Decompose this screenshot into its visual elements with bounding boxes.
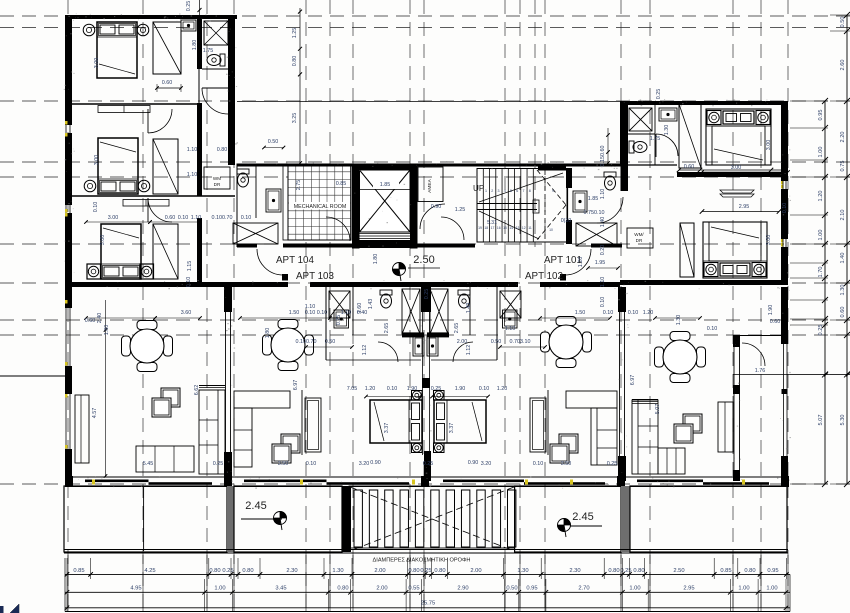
svg-text:2.00: 2.00 <box>470 568 481 574</box>
svg-text:1.43: 1.43 <box>368 299 374 310</box>
svg-text:5.07: 5.07 <box>655 404 661 415</box>
svg-text:0.703.10: 0.703.10 <box>510 339 531 345</box>
svg-text:3.00: 3.00 <box>731 165 742 171</box>
svg-text:0.25: 0.25 <box>656 89 662 100</box>
svg-text:0.10: 0.10 <box>600 297 606 308</box>
svg-text:1.10: 1.10 <box>600 277 606 288</box>
svg-text:10: 10 <box>549 228 553 232</box>
svg-text:WM/: WM/ <box>634 232 644 237</box>
svg-text:4.25: 4.25 <box>144 568 155 574</box>
svg-text:0.10: 0.10 <box>533 461 544 467</box>
svg-text:0.10: 0.10 <box>479 386 490 392</box>
svg-text:0.80: 0.80 <box>217 147 228 153</box>
svg-text:3.20: 3.20 <box>359 461 370 467</box>
svg-text:0.10: 0.10 <box>178 215 189 221</box>
svg-text:ΔΙΑΜΠΕΡΕΣ ΔΙΑΚΟΣΜΗΤΙΚΗ ΟΡΟΦΗ: ΔΙΑΜΠΕΡΕΣ ΔΙΑΚΟΣΜΗΤΙΚΗ ΟΡΟΦΗ <box>373 558 471 564</box>
svg-text:1.20: 1.20 <box>818 191 824 202</box>
svg-text:APT 101: APT 101 <box>544 255 582 266</box>
svg-text:1.25: 1.25 <box>292 28 298 39</box>
svg-text:0.25: 0.25 <box>186 1 192 12</box>
svg-text:0.85: 0.85 <box>336 181 347 187</box>
svg-text:0.25: 0.25 <box>213 461 224 467</box>
svg-text:1.95: 1.95 <box>595 260 606 266</box>
svg-text:1.70: 1.70 <box>818 267 824 278</box>
svg-text:2.90: 2.90 <box>457 586 468 592</box>
svg-text:0.80: 0.80 <box>292 56 298 67</box>
svg-text:2.50: 2.50 <box>673 568 684 574</box>
svg-text:0.85: 0.85 <box>720 568 731 574</box>
svg-text:0.80: 0.80 <box>633 568 644 574</box>
svg-text:0.25: 0.25 <box>431 386 442 392</box>
svg-text:1.00: 1.00 <box>629 586 640 592</box>
svg-text:0.60: 0.60 <box>770 319 781 325</box>
svg-text:1.85: 1.85 <box>588 196 599 202</box>
svg-text:1.30: 1.30 <box>664 125 670 136</box>
svg-text:1.30: 1.30 <box>676 315 682 326</box>
svg-text:1.90: 1.90 <box>768 305 774 316</box>
svg-text:0.50: 0.50 <box>491 339 502 345</box>
svg-text:3.37: 3.37 <box>384 423 390 434</box>
svg-text:1.80: 1.80 <box>373 254 379 265</box>
svg-text:3.20: 3.20 <box>481 461 492 467</box>
svg-text:0.50: 0.50 <box>325 339 336 345</box>
svg-text:APT 102: APT 102 <box>525 271 563 282</box>
svg-text:0.10: 0.10 <box>628 310 639 316</box>
svg-text:0.80: 0.80 <box>434 568 445 574</box>
svg-text:1.12: 1.12 <box>362 345 368 356</box>
svg-text:2.75: 2.75 <box>296 180 302 191</box>
svg-text:5: 5 <box>510 189 512 193</box>
svg-text:1.00: 1.00 <box>214 586 225 592</box>
svg-text:3.60: 3.60 <box>181 310 192 316</box>
svg-text:4: 4 <box>504 189 506 193</box>
svg-text:2.30: 2.30 <box>569 568 580 574</box>
svg-text:1.00: 1.00 <box>818 147 824 158</box>
svg-text:0.95: 0.95 <box>767 568 778 574</box>
svg-text:1.80: 1.80 <box>265 328 271 339</box>
svg-text:WM: WM <box>213 176 221 181</box>
svg-text:1.30: 1.30 <box>517 568 528 574</box>
svg-text:0.80: 0.80 <box>337 586 348 592</box>
svg-text:12: 12 <box>522 226 526 230</box>
svg-text:17: 17 <box>491 226 495 230</box>
svg-text:UP: UP <box>473 184 485 193</box>
svg-text:1.10: 1.10 <box>191 215 202 221</box>
svg-text:0.95: 0.95 <box>526 586 537 592</box>
svg-text:0.10: 0.10 <box>387 386 398 392</box>
svg-text:0|10: 0|10 <box>561 218 571 224</box>
svg-text:1.50: 1.50 <box>575 310 586 316</box>
svg-text:0.25: 0.25 <box>423 461 434 467</box>
svg-text:1.10: 1.10 <box>600 189 606 200</box>
svg-text:2.45: 2.45 <box>245 500 266 512</box>
svg-text:3: 3 <box>498 189 500 193</box>
svg-text:0.150.60: 0.150.60 <box>600 146 606 167</box>
svg-text:0.90: 0.90 <box>431 204 442 210</box>
svg-text:7: 7 <box>523 189 525 193</box>
svg-text:7.05: 7.05 <box>347 386 358 392</box>
svg-text:DR: DR <box>214 182 221 187</box>
svg-text:1.80: 1.80 <box>192 40 198 51</box>
svg-text:1.90: 1.90 <box>407 386 418 392</box>
svg-text:3.45: 3.45 <box>275 586 286 592</box>
svg-text:0.90: 0.90 <box>468 460 479 466</box>
svg-text:1.60: 1.60 <box>357 303 363 314</box>
svg-text:1.10: 1.10 <box>187 172 198 178</box>
svg-text:0.10: 0.10 <box>241 215 252 221</box>
svg-text:1.20: 1.20 <box>497 386 508 392</box>
svg-text:19: 19 <box>478 226 482 230</box>
svg-text:1.20: 1.20 <box>643 310 654 316</box>
svg-text:3.37: 3.37 <box>449 423 455 434</box>
svg-text:16: 16 <box>497 226 501 230</box>
svg-text:11: 11 <box>528 226 532 230</box>
svg-text:13: 13 <box>516 226 520 230</box>
svg-text:0.10: 0.10 <box>306 461 317 467</box>
svg-text:2.70: 2.70 <box>578 586 589 592</box>
svg-text:1.85: 1.85 <box>380 182 391 188</box>
svg-text:0.25: 0.25 <box>818 325 824 336</box>
svg-text:2.60: 2.60 <box>840 60 846 71</box>
svg-text:1.20: 1.20 <box>365 386 376 392</box>
svg-text:2.30: 2.30 <box>286 568 297 574</box>
svg-text:2.00: 2.00 <box>457 339 468 345</box>
svg-text:2.10: 2.10 <box>840 210 846 221</box>
svg-text:2.40: 2.40 <box>97 313 103 324</box>
svg-text:1.40: 1.40 <box>840 253 846 264</box>
svg-text:0.10: 0.10 <box>707 326 718 332</box>
svg-text:0.80: 0.80 <box>608 568 619 574</box>
svg-text:0.10: 0.10 <box>317 310 328 316</box>
svg-text:6.62: 6.62 <box>194 385 200 396</box>
svg-text:3.00: 3.00 <box>108 215 119 221</box>
svg-text:1.75: 1.75 <box>203 48 214 54</box>
svg-text:4.57: 4.57 <box>92 408 98 419</box>
svg-text:0.75: 0.75 <box>840 161 846 172</box>
svg-text:14: 14 <box>509 226 513 230</box>
svg-text:1.75: 1.75 <box>650 136 661 142</box>
svg-text:3.25: 3.25 <box>292 113 298 124</box>
svg-text:2.50: 2.50 <box>413 254 434 266</box>
svg-text:0.60: 0.60 <box>165 215 176 221</box>
svg-text:0.60: 0.60 <box>162 80 173 86</box>
svg-text:3.00: 3.00 <box>766 140 772 151</box>
svg-text:APT 104: APT 104 <box>276 255 314 266</box>
svg-text:0.50: 0.50 <box>840 17 846 28</box>
svg-text:9: 9 <box>552 189 554 193</box>
svg-text:3.00: 3.00 <box>100 235 106 246</box>
svg-text:0.100.70: 0.100.70 <box>296 339 317 345</box>
svg-text:0.80: 0.80 <box>242 568 253 574</box>
svg-text:AMEA: AMEA <box>427 178 433 192</box>
svg-text:0.60: 0.60 <box>684 164 695 170</box>
svg-text:0.60: 0.60 <box>85 318 96 324</box>
svg-text:2.65: 2.65 <box>384 323 390 334</box>
svg-text:2.45: 2.45 <box>572 511 593 523</box>
svg-text:2.00: 2.00 <box>374 568 385 574</box>
svg-text:1.50: 1.50 <box>289 310 300 316</box>
svg-text:APT 103: APT 103 <box>296 271 334 282</box>
svg-text:1.80: 1.80 <box>104 325 110 336</box>
svg-text:0.60: 0.60 <box>840 307 846 318</box>
svg-text:1.10: 1.10 <box>305 304 316 310</box>
svg-text:1.20: 1.20 <box>578 257 584 268</box>
svg-text:0.10: 0.10 <box>186 277 192 288</box>
svg-text:5.30: 5.30 <box>840 415 846 426</box>
svg-text:0.25: 0.25 <box>620 568 631 574</box>
svg-text:0.100.70: 0.100.70 <box>212 215 233 221</box>
svg-text:1.00: 1.00 <box>818 230 824 241</box>
svg-text:1.30: 1.30 <box>332 568 343 574</box>
svg-text:5.45: 5.45 <box>143 461 154 467</box>
svg-text:1: 1 <box>485 189 487 193</box>
svg-text:3.50: 3.50 <box>561 461 572 467</box>
svg-text:15: 15 <box>503 226 507 230</box>
svg-text:1.12: 1.12 <box>466 345 472 356</box>
svg-text:3.50: 3.50 <box>278 461 289 467</box>
svg-text:2.00: 2.00 <box>376 586 387 592</box>
svg-text:6.97: 6.97 <box>630 375 636 386</box>
svg-text:0.10: 0.10 <box>603 310 614 316</box>
svg-text:3.00: 3.00 <box>766 235 772 246</box>
svg-text:5.07: 5.07 <box>818 415 824 426</box>
svg-text:0.90: 0.90 <box>370 460 381 466</box>
svg-text:0.10: 0.10 <box>782 203 788 214</box>
svg-text:0.85: 0.85 <box>73 568 84 574</box>
svg-text:1.76: 1.76 <box>755 368 766 374</box>
svg-text:1.10: 1.10 <box>341 310 352 316</box>
svg-text:MECHANICAL ROOM: MECHANICAL ROOM <box>294 204 346 210</box>
svg-text:4.95: 4.95 <box>130 586 141 592</box>
svg-text:1.10: 1.10 <box>505 326 516 332</box>
svg-text:1.40: 1.40 <box>600 217 606 228</box>
svg-text:0.50: 0.50 <box>506 586 517 592</box>
svg-text:0.25: 0.25 <box>607 461 618 467</box>
svg-text:1.90: 1.90 <box>455 386 466 392</box>
svg-text:2.20: 2.20 <box>840 132 846 143</box>
svg-text:0.10: 0.10 <box>305 310 316 316</box>
svg-text:1.43: 1.43 <box>466 303 472 314</box>
svg-text:1.10: 1.10 <box>187 147 198 153</box>
svg-text:2.65: 2.65 <box>454 323 460 334</box>
svg-text:DR: DR <box>636 238 643 243</box>
svg-text:2.95: 2.95 <box>739 204 750 210</box>
svg-text:0.25: 0.25 <box>424 289 430 300</box>
svg-text:0.75: 0.75 <box>336 315 342 326</box>
svg-text:0.80: 0.80 <box>744 568 755 574</box>
svg-text:1.00: 1.00 <box>738 586 749 592</box>
svg-text:2.95: 2.95 <box>683 586 694 592</box>
svg-text:1.00: 1.00 <box>766 586 777 592</box>
svg-text:8: 8 <box>529 189 531 193</box>
svg-text:6.97: 6.97 <box>293 380 299 391</box>
svg-text:0.10: 0.10 <box>93 202 99 213</box>
svg-text:3.00: 3.00 <box>94 155 100 166</box>
svg-text:1.15: 1.15 <box>187 261 193 272</box>
svg-text:6: 6 <box>516 189 518 193</box>
svg-text:2: 2 <box>491 189 493 193</box>
svg-text:0.80: 0.80 <box>209 568 220 574</box>
svg-text:1.25: 1.25 <box>455 207 466 213</box>
svg-text:18: 18 <box>484 226 488 230</box>
svg-text:0.20: 0.20 <box>600 245 606 256</box>
svg-text:0.95: 0.95 <box>818 110 824 121</box>
svg-text:0.50: 0.50 <box>268 139 279 145</box>
svg-text:3.00: 3.00 <box>94 58 100 69</box>
svg-text:1.30: 1.30 <box>840 285 846 296</box>
svg-text:25.75: 25.75 <box>421 601 436 607</box>
svg-text:0.750.10: 0.750.10 <box>584 210 605 216</box>
